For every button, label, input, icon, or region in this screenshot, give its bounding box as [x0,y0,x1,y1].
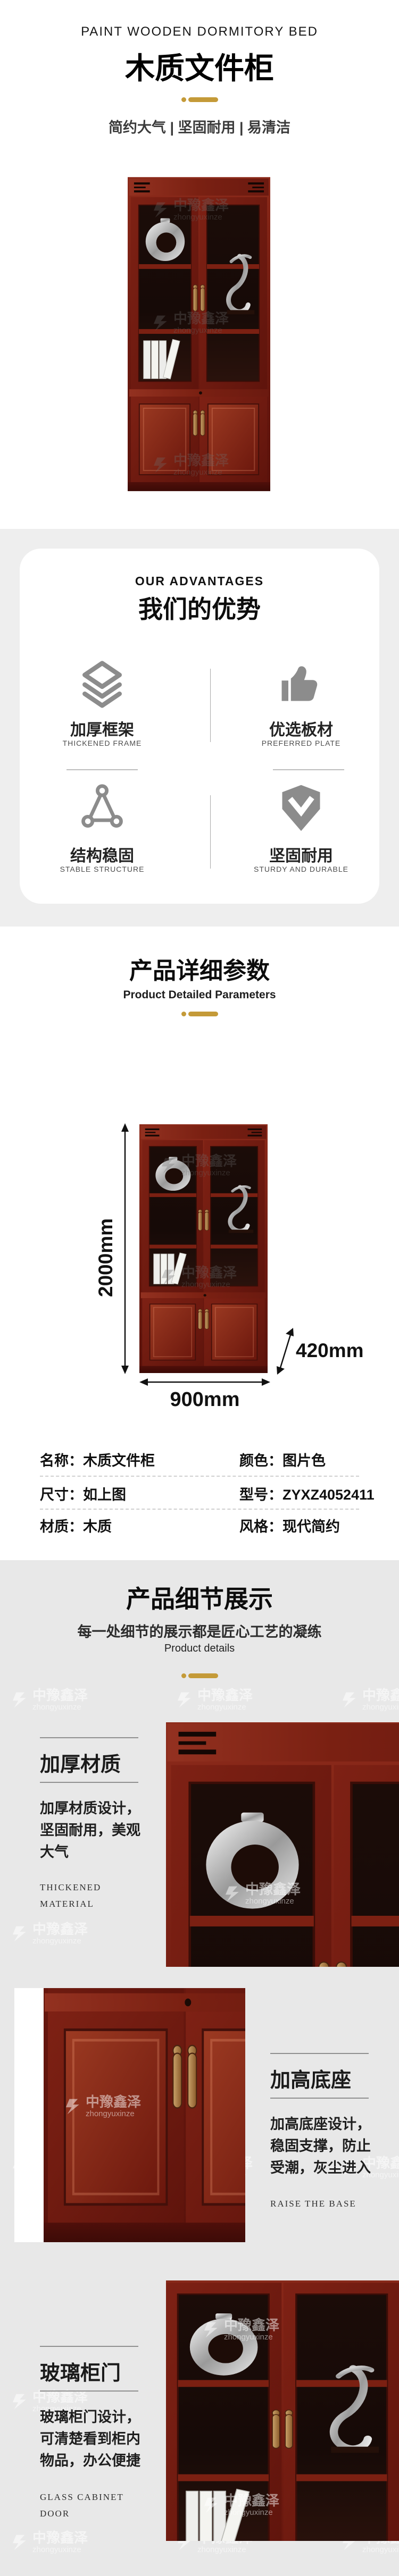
gold-divider-bar [188,97,218,102]
spec-label: 名称： [40,1453,83,1469]
cabinet-illustration [128,176,270,492]
advantage-item-subtitle: PREFERRED PLATE [232,739,370,747]
detail-block-en: GLASS CABINET DOOR [40,2489,136,2522]
detail-title-rule [40,1782,138,1783]
cabinet-glass-doors-crop [166,2280,399,2541]
detail-image-thickened-material [166,1722,399,1967]
advantages-horizontal-divider [273,769,344,770]
height-dimension-label: 2000mm [95,1218,117,1297]
details-subtitle-en: Product details [0,1643,399,1655]
spec-label: 型号： [239,1487,282,1503]
cabinet-base-crop [44,1988,245,2242]
dimension-diagram-image [139,1124,268,1373]
detail-block-desc: 加厚材质设计，坚固耐用，美观大气 [40,1798,153,1863]
detail-title-rule [270,2098,369,2099]
advantage-item-title: 加厚框架 [33,717,171,740]
detail-block-en: RAISE THE BASE [270,2195,361,2212]
spec-value: 现代简约 [282,1519,340,1535]
advantages-vertical-divider [210,669,211,742]
spec-model: 型号：ZYXZ4052411 [239,1483,375,1504]
gold-divider [181,1673,218,1679]
advantage-item-subtitle: STURDY AND DURABLE [232,865,370,873]
detail-title-rule [40,2346,138,2347]
detail-block-title: 加厚材质 [40,1748,121,1777]
spec-value: 木质 [83,1519,112,1535]
depth-dimension-label: 420mm [296,1340,364,1362]
advantages-eyebrow: OUR ADVANTAGES [0,574,399,588]
detail-title-rule [40,1737,138,1738]
product-detail-page: PAINT WOODEN DORMITORY BED 木质文件柜 简约大气 | … [0,0,399,2576]
triangle-structure-icon [77,782,128,834]
spec-value: 如上图 [83,1487,126,1503]
detail-block-title: 玻璃柜门 [40,2356,121,2386]
page-eyebrow: PAINT WOODEN DORMITORY BED [0,24,399,39]
advantages-vertical-divider [210,795,211,869]
cabinet-illustration [139,1124,268,1373]
thumbs-up-icon [276,658,327,709]
spec-size: 尺寸：如上图 [40,1483,126,1504]
detail-image-glass-door [166,2280,399,2541]
gold-divider-dot [181,1673,186,1678]
advantages-title: 我们的优势 [0,590,399,625]
detail-block-desc: 玻璃柜门设计，可清楚看到柜内物品，办公便捷 [40,2406,153,2472]
gold-divider [181,97,218,103]
height-dimension-arrow [120,1123,130,1374]
gold-divider [181,1012,218,1017]
gold-divider-dot [181,97,186,102]
spec-label: 材质： [40,1519,83,1535]
advantage-item-title: 优选板材 [232,717,370,740]
page-title: 木质文件柜 [0,45,399,88]
spec-value: ZYXZ4052411 [282,1487,375,1503]
width-dimension-label: 900mm [139,1388,270,1411]
spec-label: 风格： [239,1519,282,1535]
width-dimension-arrow [139,1378,270,1386]
gold-divider-bar [188,1012,218,1016]
spec-color: 颜色：图片色 [239,1449,326,1470]
detail-block-desc: 加高底座设计，稳固支撑，防止受潮，灰尘进入 [270,2114,383,2179]
spec-material: 材质：木质 [40,1515,112,1536]
details-subtitle: 每一处细节的展示都是匠心工艺的凝练 [0,1620,399,1641]
parameters-subtitle: Product Detailed Parameters [0,989,399,1001]
cabinet-top-corner-crop [166,1722,399,1967]
details-title: 产品细节展示 [0,1580,399,1615]
spec-style: 风格：现代简约 [239,1515,340,1536]
spec-value: 木质文件柜 [83,1453,155,1469]
spec-name: 名称：木质文件柜 [40,1449,155,1470]
advantage-item-title: 坚固耐用 [232,843,370,866]
shield-check-icon [276,782,327,834]
gold-divider-dot [181,1012,186,1016]
depth-dimension-arrow [273,1327,297,1375]
gold-divider-bar [188,1673,218,1678]
page-subtitle: 简约大气 | 坚固耐用 | 易清洁 [0,116,399,137]
advantage-item-title: 结构稳固 [33,843,171,866]
detail-block-title: 加高底座 [270,2064,351,2093]
detail-title-rule [270,2053,369,2054]
detail-image-raised-base [14,1988,245,2242]
product-hero-image [128,176,270,492]
parameters-title: 产品详细参数 [0,952,399,986]
spec-label: 颜色： [239,1453,282,1469]
advantage-item-subtitle: STABLE STRUCTURE [33,865,171,873]
layers-icon [77,658,128,709]
table-divider [40,1509,359,1510]
detail-title-rule [40,2390,138,2392]
spec-label: 尺寸： [40,1487,83,1503]
advantages-horizontal-divider [66,769,138,770]
advantage-item-subtitle: THICKENED FRAME [33,739,171,747]
spec-value: 图片色 [282,1453,326,1469]
detail-block-en: THICKENED MATERIAL [40,1879,130,1912]
table-divider [40,1476,359,1477]
